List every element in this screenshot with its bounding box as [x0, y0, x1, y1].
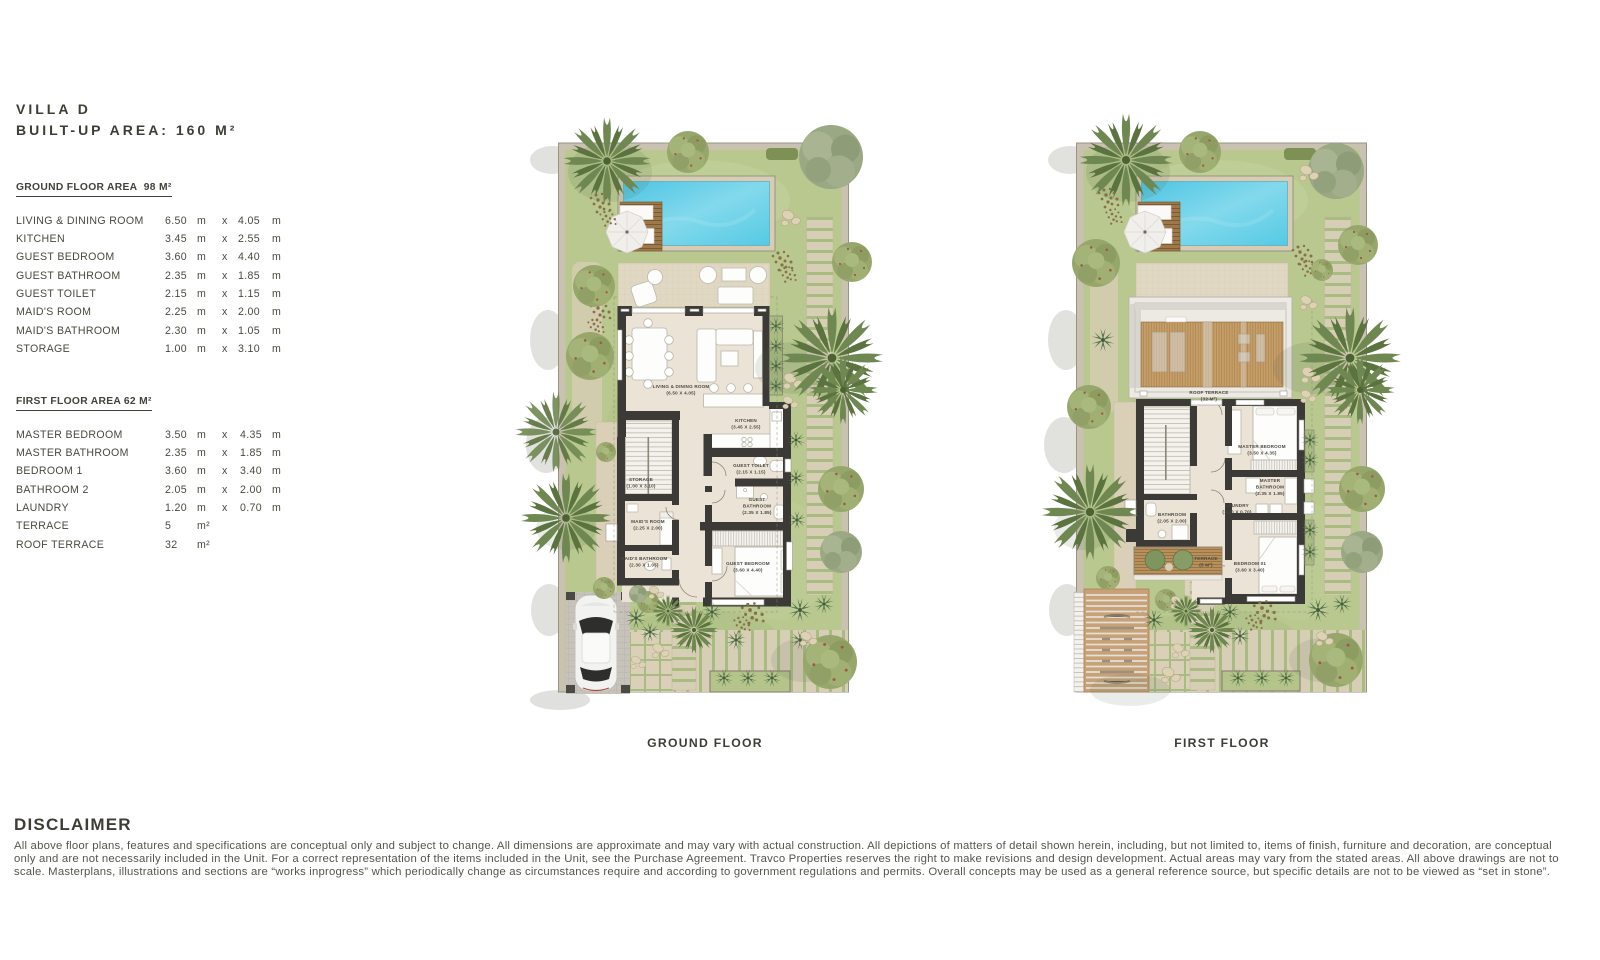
svg-text:(5 M²): (5 M²) — [1199, 563, 1213, 568]
svg-text:(3.60 X 4.40): (3.60 X 4.40) — [733, 568, 762, 573]
svg-text:(2.35 X 1.85): (2.35 X 1.85) — [742, 510, 771, 515]
svg-text:MASTER BEDROOM: MASTER BEDROOM — [1238, 444, 1285, 449]
svg-text:TERRACE: TERRACE — [1194, 556, 1218, 561]
svg-text:KITCHEN: KITCHEN — [735, 418, 757, 423]
svg-text:(3.60 X 3.40): (3.60 X 3.40) — [1235, 568, 1264, 573]
svg-text:ROOF TERRACE: ROOF TERRACE — [1189, 390, 1228, 395]
svg-text:(32 M²): (32 M²) — [1201, 397, 1217, 402]
svg-text:(2.15 X 1.15): (2.15 X 1.15) — [736, 470, 765, 475]
svg-text:(2.05 X 2.00): (2.05 X 2.00) — [1157, 519, 1186, 524]
svg-text:BATHROOM: BATHROOM — [743, 504, 771, 509]
svg-text:(3.45 X 2.55): (3.45 X 2.55) — [731, 425, 760, 430]
svg-text:(6.50 X 4.05): (6.50 X 4.05) — [666, 391, 695, 396]
svg-text:GUEST TOILET: GUEST TOILET — [733, 463, 769, 468]
svg-text:MASTER: MASTER — [1260, 478, 1281, 483]
svg-text:LIVING & DINING ROOM: LIVING & DINING ROOM — [653, 384, 710, 389]
svg-text:MAID'S BATHROOM: MAID'S BATHROOM — [621, 556, 668, 561]
svg-text:BATHROOM: BATHROOM — [1158, 512, 1186, 517]
svg-text:MAID'S ROOM: MAID'S ROOM — [631, 519, 665, 524]
svg-text:(2.35 X 1.85): (2.35 X 1.85) — [1255, 491, 1284, 496]
svg-text:(2.25 X 2.00): (2.25 X 2.00) — [633, 526, 662, 531]
svg-text:GUEST BEDROOM: GUEST BEDROOM — [726, 561, 770, 566]
svg-text:STORAGE: STORAGE — [629, 477, 653, 482]
svg-text:(3.50 X 4.35): (3.50 X 4.35) — [1247, 451, 1276, 456]
svg-text:BATHROOM: BATHROOM — [1256, 485, 1284, 490]
svg-text:(2.30 X 1.05): (2.30 X 1.05) — [629, 563, 658, 568]
svg-text:GUEST: GUEST — [749, 497, 766, 502]
svg-text:(1.00 X 3.10): (1.00 X 3.10) — [626, 484, 655, 489]
svg-text:(1.20 X 0.70): (1.20 X 0.70) — [1222, 510, 1251, 515]
svg-text:BEDROOM 01: BEDROOM 01 — [1234, 561, 1267, 566]
svg-text:LAUNDRY: LAUNDRY — [1225, 503, 1249, 508]
